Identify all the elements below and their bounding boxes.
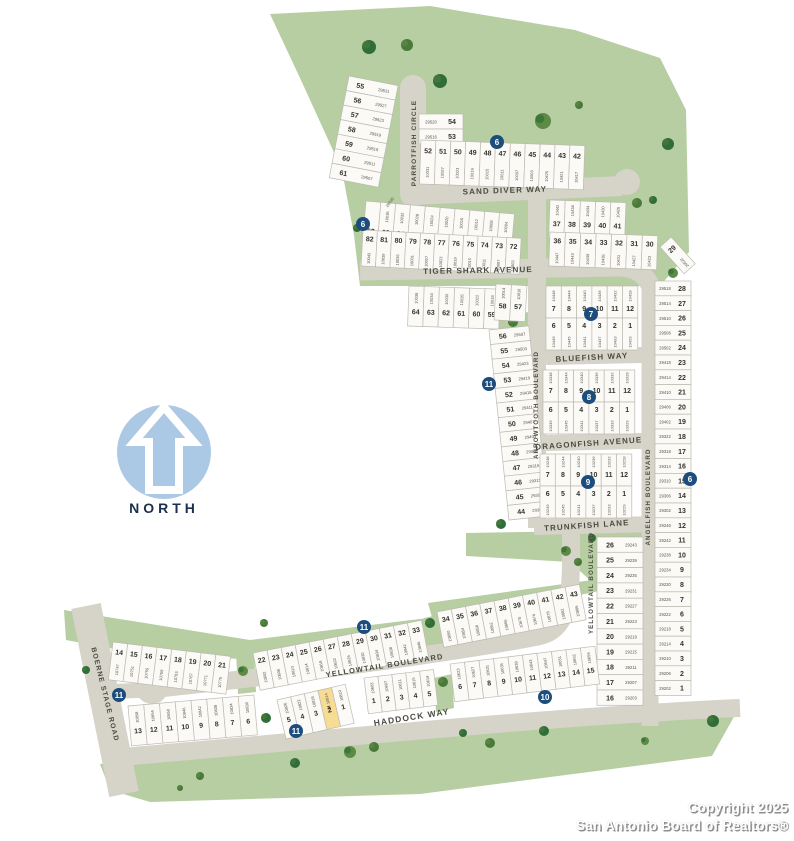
lot <box>453 288 470 329</box>
lot-number: 11 <box>608 388 616 395</box>
tree-icon <box>707 715 719 727</box>
lot-number: 48 <box>511 450 520 458</box>
lot-number: 15 <box>586 667 595 675</box>
lot-address: 10003 <box>529 169 534 181</box>
lot-number: 45 <box>528 152 536 159</box>
lot-address: 10436 <box>597 290 602 302</box>
lot-address: 29203 <box>625 695 637 700</box>
lot-number: 4 <box>582 323 586 330</box>
tree-icon <box>668 268 678 278</box>
unit-badge: 11 <box>357 620 371 634</box>
tree-icon <box>632 198 642 208</box>
unit-badge-number: 6 <box>688 475 693 484</box>
lot-address: 29211 <box>625 665 637 670</box>
lot-number: 5 <box>567 323 571 330</box>
lot-address: 29223 <box>625 619 637 624</box>
lot-address: 10434 <box>585 205 590 217</box>
lot-number: 5 <box>680 626 684 633</box>
lot-number: 44 <box>517 509 526 517</box>
lot-number: 24 <box>285 651 294 659</box>
lot-number: 55 <box>356 83 365 91</box>
lot-number: 32 <box>398 629 407 637</box>
lot-number: 16 <box>606 695 614 702</box>
lot-address: 29215 <box>625 650 637 655</box>
lot-address: 10039 <box>380 253 386 265</box>
lot-number: 11 <box>166 725 174 733</box>
lot-address: 10024 <box>429 214 435 226</box>
lot-number: 6 <box>680 612 684 619</box>
lot-number: 12 <box>150 726 158 734</box>
lot-number: 26 <box>678 316 686 323</box>
unit-badge: 6 <box>683 472 697 486</box>
unit-badge: 10 <box>538 690 552 704</box>
lot-number: 10 <box>678 552 686 559</box>
lot-number: 39 <box>513 602 522 610</box>
lot-number: 57 <box>350 112 359 120</box>
lot-address: 29210 <box>659 656 671 661</box>
lot-number: 63 <box>427 310 435 317</box>
lot-address: 10445 <box>566 336 571 348</box>
lot-address: 10034 <box>429 292 434 304</box>
lot-address: 29230 <box>659 582 671 587</box>
lot-number: 31 <box>384 632 393 640</box>
lot-number: 36 <box>470 610 479 618</box>
street-label: PARROTFISH CIRCLE <box>411 100 418 186</box>
lot-number: 37 <box>553 221 561 228</box>
unit-badge-number: 7 <box>589 310 594 319</box>
lot-number: 62 <box>442 310 450 317</box>
north-arrow-icon: NORTH <box>117 405 211 516</box>
lot-number: 61 <box>339 170 348 178</box>
lot-address: 10020 <box>443 216 449 228</box>
lot-address: 10031 <box>409 254 415 266</box>
lot-address: 10428 <box>628 290 633 302</box>
tree-icon <box>535 113 551 129</box>
lot-address: 10429 <box>628 336 633 348</box>
tree-icon <box>261 713 271 723</box>
lot-number: 26 <box>313 646 322 654</box>
lot-number: 22 <box>606 603 614 610</box>
lot-number: 58 <box>347 126 356 134</box>
lot-number: 17 <box>678 449 686 456</box>
lot-number: 32 <box>615 240 623 247</box>
lot-address: 10015 <box>484 168 489 180</box>
lot-number: 43 <box>558 153 566 160</box>
lot-number: 3 <box>595 407 599 414</box>
lot-address: 10846 <box>181 707 187 719</box>
lot-number: 77 <box>438 240 446 247</box>
lot-number: 9 <box>199 723 204 730</box>
unit-badge: 11 <box>112 688 126 702</box>
tree-icon <box>290 758 300 768</box>
lot-number: 64 <box>412 309 420 316</box>
lot-number: 18 <box>174 657 183 665</box>
lot-address: 29410 <box>659 390 671 395</box>
lot-address: 10240 <box>576 456 581 468</box>
lot-number: 41 <box>613 223 621 230</box>
copyright-notice: Copyright 2025 San Antonio Board of Real… <box>576 799 788 835</box>
unit-badge: 6 <box>490 135 504 149</box>
lot-number: 24 <box>678 345 686 352</box>
lot-number: 7 <box>552 306 556 313</box>
lot-number: 80 <box>394 238 402 245</box>
north-label: NORTH <box>129 500 199 516</box>
lot-number: 54 <box>502 362 511 370</box>
lot-number: 55 <box>500 348 509 356</box>
lot-number: 12 <box>620 472 628 479</box>
lot-strip-angelfish-east: 2829518272951426295102529506242950223294… <box>655 281 691 695</box>
lot-address: 10858 <box>134 711 140 723</box>
lot-address: 29219 <box>625 634 637 639</box>
unit-badge-number: 11 <box>485 380 494 389</box>
lot-number: 21 <box>218 662 227 670</box>
lot-number: 51 <box>439 149 447 156</box>
lot-number: 2 <box>607 491 611 498</box>
lot-address: 10036 <box>384 210 390 222</box>
tree-icon <box>433 74 447 88</box>
lot-number: 52 <box>505 392 514 400</box>
lot-address: 10850 <box>165 708 171 720</box>
lot-address: 29242 <box>659 538 671 543</box>
lot-number: 28 <box>678 286 686 293</box>
unit-badge-number: 6 <box>495 138 500 147</box>
lot-number: 26 <box>606 542 614 549</box>
lot-address: 29227 <box>625 604 637 609</box>
lot-number: 1 <box>628 323 632 330</box>
lot-number: 27 <box>678 301 686 308</box>
lot-number: 40 <box>527 599 536 607</box>
lot-number: 3 <box>680 656 684 663</box>
lot-number: 60 <box>342 155 351 163</box>
lot-address: 10011 <box>499 169 504 181</box>
unit-badge-number: 11 <box>115 691 124 700</box>
lot-address: 10448 <box>551 290 556 302</box>
lot-address: 10014 <box>500 287 506 299</box>
lot-number: 38 <box>568 222 576 229</box>
lot-number: 40 <box>598 223 606 230</box>
lot-address: 29235 <box>625 573 637 578</box>
lot-strip-bluefish-block-bottom: 610449510445410441310437210433110429 <box>546 318 638 350</box>
lot-number: 58 <box>498 303 506 310</box>
lot-number: 35 <box>569 239 577 246</box>
tree-icon <box>459 729 467 737</box>
lot-address: 10329 <box>625 420 630 432</box>
lot-number: 76 <box>452 241 460 248</box>
lot-address: 10030 <box>444 293 449 305</box>
lot-number: 14 <box>115 649 124 657</box>
lot-address: 10228 <box>622 456 627 468</box>
lot-number: 18 <box>678 434 686 441</box>
tree-icon <box>438 677 448 687</box>
lot-number: 19 <box>678 419 686 426</box>
tree-icon <box>401 39 413 51</box>
lot-address: 10440 <box>582 290 587 302</box>
lot-number: 20 <box>678 404 686 411</box>
lot-number: 82 <box>366 236 374 243</box>
lot-address: 10043 <box>366 252 372 264</box>
lot-strip-trunkfish-block-bottom: 610249510245410241310237210233110229 <box>540 486 632 518</box>
lot-number: 45 <box>515 494 524 502</box>
lot-address: 10340 <box>579 372 584 384</box>
lot-number: 57 <box>514 304 522 311</box>
lot-number: 4 <box>579 407 583 414</box>
street-label: YELLOWTAIL BOULEVARD <box>588 532 595 634</box>
lot-number: 12 <box>678 523 686 530</box>
subdivision-plat-map: 5529531562952757295235829519592951560295… <box>0 0 794 841</box>
lot-number: 72 <box>509 244 517 251</box>
tree-icon <box>575 101 583 109</box>
lot-number: 56 <box>353 97 362 105</box>
lot <box>438 287 455 328</box>
lot-address: 29306 <box>659 493 671 498</box>
lot-number: 6 <box>546 491 550 498</box>
lot-number: 4 <box>576 491 580 498</box>
lot-number: 50 <box>508 421 517 429</box>
lot-address: 10022 <box>474 294 479 306</box>
lot-number: 33 <box>600 240 608 247</box>
lot-address: 29518 <box>659 286 671 291</box>
lot-number: 81 <box>380 237 388 244</box>
lot <box>238 695 257 736</box>
unit-badge: 11 <box>482 377 496 391</box>
lot-number: 36 <box>553 238 561 245</box>
lot-address: 10437 <box>597 336 602 348</box>
lot-number: 15 <box>129 651 138 659</box>
lot-address: 10345 <box>563 420 568 432</box>
lot-address: 10348 <box>548 372 553 384</box>
tree-icon <box>177 785 183 791</box>
lot-number: 22 <box>678 375 686 382</box>
lot-address: 10328 <box>625 372 630 384</box>
lot-number: 8 <box>215 721 220 728</box>
lot-number: 25 <box>678 330 686 337</box>
tree-icon <box>496 519 506 529</box>
lot-number: 37 <box>484 607 493 615</box>
lot-number: 2 <box>680 671 684 678</box>
lot <box>408 286 425 327</box>
lot-address: 10337 <box>594 420 599 432</box>
lot-address: 10016 <box>458 217 464 229</box>
lot-number: 13 <box>678 508 686 515</box>
lot-number: 30 <box>370 635 379 643</box>
lot-strip-tiger-shark-north-east: 3610447351044334104393310435321043131104… <box>549 232 658 270</box>
lot-number: 44 <box>543 152 551 159</box>
lot-number: 10 <box>181 724 189 732</box>
lot-address: 10830 <box>244 701 250 713</box>
lot-number: 9 <box>579 388 583 395</box>
lot-address: 10249 <box>545 504 550 516</box>
lot-address: 10026 <box>459 293 464 305</box>
lot-number: 59 <box>344 141 353 149</box>
lot-number: 34 <box>584 239 592 246</box>
lot-number: 8 <box>567 306 571 313</box>
lot-number: 2 <box>613 323 617 330</box>
lot-address: 10244 <box>560 456 565 468</box>
lot-number: 41 <box>541 596 550 604</box>
lot-number: 6 <box>549 407 553 414</box>
lot-address: 29322 <box>659 434 671 439</box>
lot-address: 10008 <box>488 219 494 231</box>
lot-number: 1 <box>622 491 626 498</box>
street-label: ANGELFISH BOULEVARD <box>645 448 652 545</box>
lot-address: 10444 <box>566 290 571 302</box>
lot-address: 10035 <box>395 253 401 265</box>
lot-address: 10432 <box>612 290 617 302</box>
lot-address: 10232 <box>606 456 611 468</box>
lot-address: 10441 <box>582 336 587 348</box>
lot-address: 10439 <box>585 253 590 265</box>
lot-number: 6 <box>552 323 556 330</box>
lot-address: 29520 <box>425 119 437 124</box>
lot-number: 7 <box>680 597 684 604</box>
lot-strip-dragonfish-block-bottom: 610349510345410341310337210333110329 <box>543 402 635 434</box>
lot-address: 29502 <box>659 345 671 350</box>
lot-address: 10426 <box>615 206 620 218</box>
lot-number: 19 <box>188 658 197 666</box>
lot-address: 10443 <box>569 252 574 264</box>
lot-number: 17 <box>159 655 168 663</box>
lot-strip-yellowtail-east-inner: 2629243252923924292352329231222922721292… <box>597 537 643 705</box>
lot-address: 10344 <box>563 372 568 384</box>
lot-address: 10018 <box>489 294 494 306</box>
lot-address: 29246 <box>659 523 671 528</box>
lot-number: 5 <box>561 491 565 498</box>
lot-number: 50 <box>454 149 462 156</box>
tree-icon <box>561 546 571 556</box>
lot-address: 29226 <box>659 597 671 602</box>
lot-number: 6 <box>246 718 251 725</box>
lot-number: 42 <box>573 153 581 160</box>
lot-address: 29310 <box>659 479 671 484</box>
lot-number: 13 <box>557 671 566 679</box>
lot-address: 10233 <box>606 504 611 516</box>
lot-number: 7 <box>546 472 550 479</box>
lot-number: 11 <box>611 306 619 313</box>
lot-number: 5 <box>564 407 568 414</box>
tree-icon <box>641 737 649 745</box>
lot-number: 11 <box>605 472 613 479</box>
lot-number: 46 <box>514 479 523 487</box>
plat-map-page: 5529531562952757295235829519592951560295… <box>0 0 794 841</box>
lot-address: 29302 <box>659 508 671 513</box>
lot-number: 47 <box>498 151 506 158</box>
lot-address: 10038 <box>413 292 418 304</box>
lot-address: 10237 <box>591 504 596 516</box>
lot-address: 10349 <box>548 420 553 432</box>
lot-number: 53 <box>448 134 456 141</box>
lot-address: 29414 <box>659 375 671 380</box>
lot-number: 16 <box>678 464 686 471</box>
lot-number: 12 <box>626 306 634 313</box>
lot-address: 10438 <box>570 204 575 216</box>
lot-address: 29318 <box>659 449 671 454</box>
road-sand-diver-knob <box>614 169 640 195</box>
tree-icon <box>344 746 356 758</box>
copyright-line1: Copyright 2025 <box>576 799 788 817</box>
lot-address: 10431 <box>616 254 621 266</box>
lot-number: 10 <box>514 676 523 684</box>
lot-number: 11 <box>529 675 537 683</box>
lot <box>423 287 440 328</box>
lot-number: 7 <box>549 388 553 395</box>
lot-address: 10442 <box>555 204 560 216</box>
lot-number: 7 <box>230 720 235 727</box>
lot-address: 10449 <box>551 336 556 348</box>
lot-number: 74 <box>481 242 489 249</box>
lot-address: 29402 <box>659 419 671 424</box>
lot-number: 51 <box>506 406 515 414</box>
copyright-line2: San Antonio Board of Realtors® <box>576 817 788 835</box>
tree-icon <box>362 40 376 54</box>
lot-number: 8 <box>680 582 684 589</box>
tree-icon <box>369 742 379 752</box>
lot-number: 1 <box>680 686 684 693</box>
lot-address: 29516 <box>425 134 437 139</box>
lot-address: 10019 <box>469 167 474 179</box>
tree-icon <box>196 772 204 780</box>
unit-badge: 6 <box>356 217 370 231</box>
lot-number: 39 <box>583 222 591 229</box>
lot-address: 29506 <box>659 331 671 336</box>
lot-address: 29234 <box>659 567 671 572</box>
lot-number: 73 <box>495 243 503 250</box>
lot-number: 9 <box>576 472 580 479</box>
unit-badge: 11 <box>289 724 303 738</box>
lot-number: 29 <box>356 638 365 646</box>
lot-address: 10341 <box>579 420 584 432</box>
lot-address: 10007 <box>514 169 519 181</box>
tree-icon <box>82 666 90 674</box>
lot-address: 29238 <box>659 553 671 558</box>
lot-address: 29514 <box>659 301 671 306</box>
lot-number: 23 <box>678 360 686 367</box>
lot-number: 75 <box>466 241 474 248</box>
lot-address: 10423 <box>646 255 651 267</box>
tree-icon <box>649 196 657 204</box>
lot-address: 29202 <box>659 686 671 691</box>
lot-number: 21 <box>606 619 614 626</box>
lot-number: 23 <box>271 654 280 662</box>
lot-address: 29206 <box>659 671 671 676</box>
unit-badge: 9 <box>581 475 595 489</box>
lot-number: 52 <box>424 148 432 155</box>
lot-number: 46 <box>513 151 521 158</box>
lot-address: 10834 <box>228 702 234 714</box>
lot-number: 16 <box>144 653 153 661</box>
lot-number: 21 <box>678 390 686 397</box>
lot-number: 61 <box>457 311 465 318</box>
lot-address: 10425 <box>544 170 549 182</box>
lot-number: 1 <box>625 407 629 414</box>
tree-icon <box>539 726 549 736</box>
lot-number: 28 <box>342 640 351 648</box>
unit-badge-number: 6 <box>361 220 366 229</box>
lot-number: 22 <box>257 657 266 665</box>
tree-icon <box>485 738 495 748</box>
unit-badge: 7 <box>584 307 598 321</box>
tree-icon <box>425 618 435 628</box>
lot-number: 12 <box>623 388 631 395</box>
tree-icon <box>574 558 582 566</box>
lot-number: 14 <box>572 669 581 677</box>
unit-badge: 8 <box>582 390 596 404</box>
lot-address: 10433 <box>612 336 617 348</box>
lot-address: 29243 <box>625 542 637 547</box>
lot-address: 29222 <box>659 612 671 617</box>
unit-badge-number: 11 <box>292 727 301 736</box>
lot-address: 29418 <box>659 360 671 365</box>
tree-icon <box>260 619 268 627</box>
